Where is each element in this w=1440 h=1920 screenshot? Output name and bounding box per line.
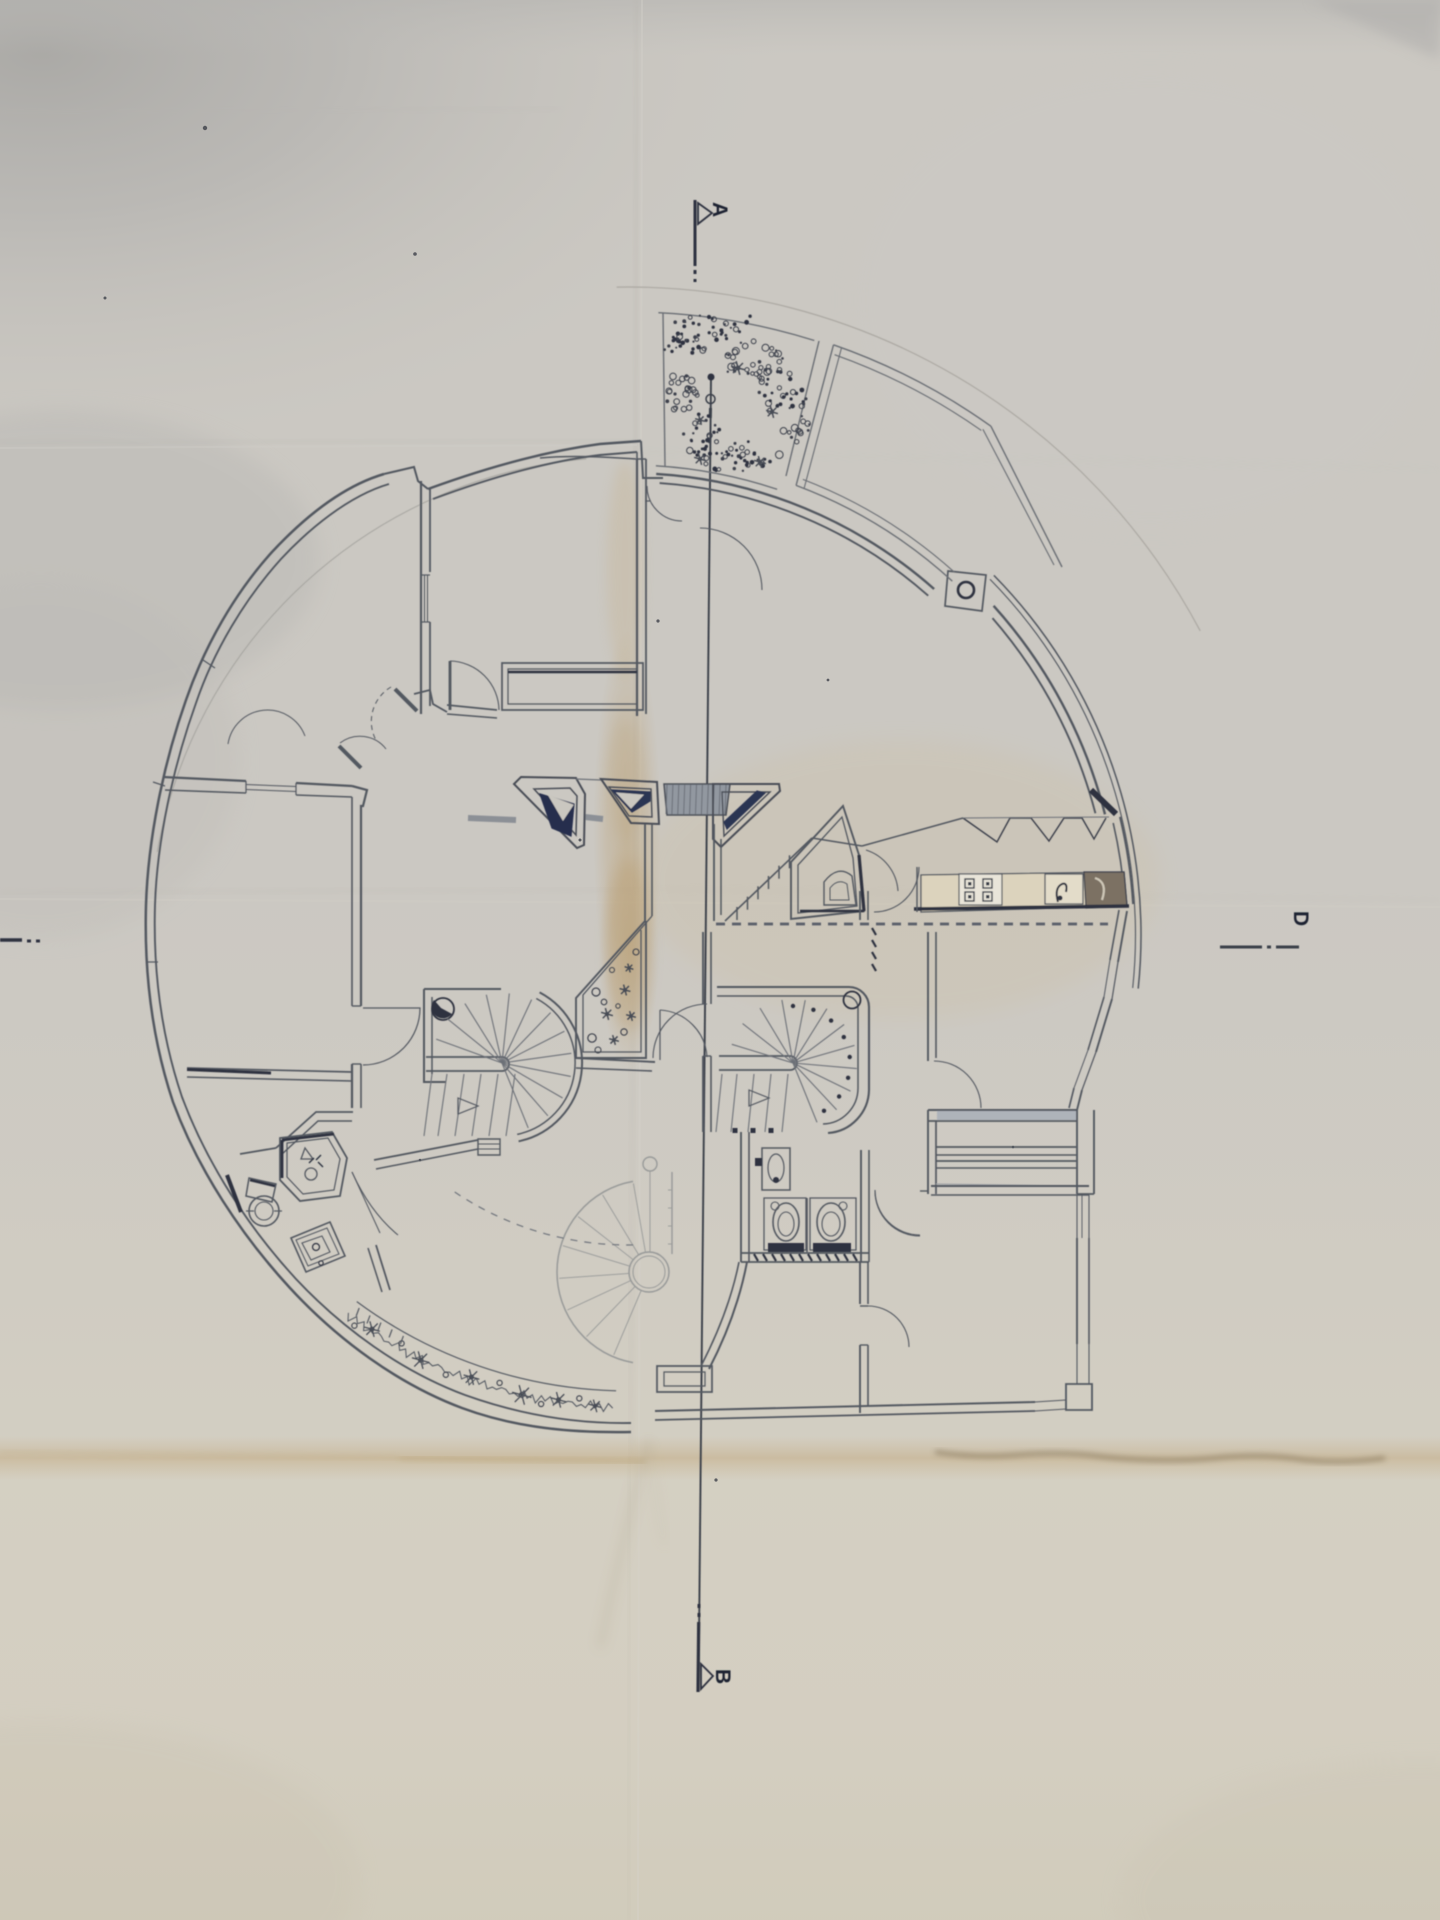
svg-text:D: D — [1289, 911, 1312, 926]
svg-text:B: B — [711, 1669, 734, 1684]
svg-text:A: A — [708, 202, 731, 217]
